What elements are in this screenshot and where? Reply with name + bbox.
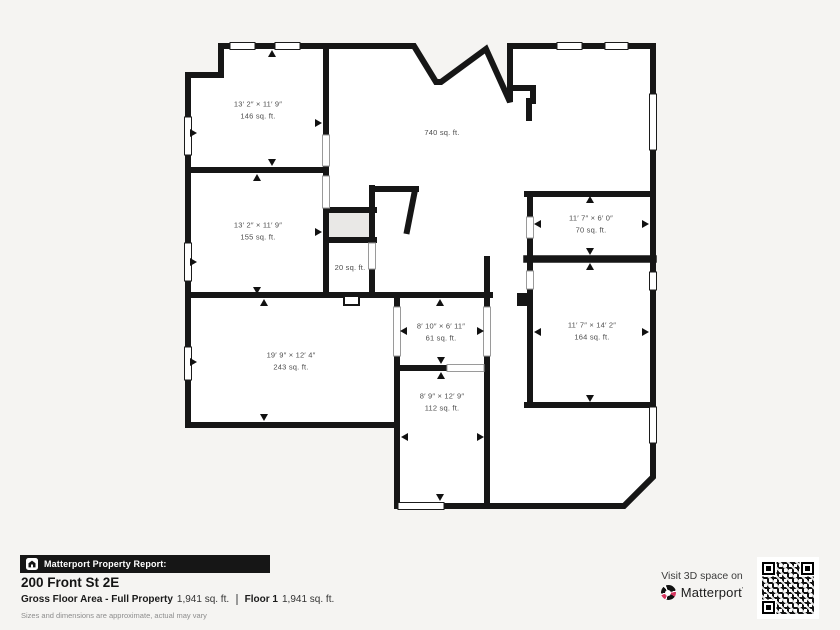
- room-dims: 13′ 2″ × 11′ 9″: [234, 98, 282, 110]
- qr-code: [757, 557, 819, 619]
- wall-stubs: [517, 293, 529, 306]
- property-icon: [26, 558, 38, 570]
- room-area: 70 sq. ft.: [569, 224, 613, 236]
- room-label-70: 11′ 7″ × 6′ 0″ 70 sq. ft.: [569, 212, 613, 235]
- brand-row: Matterport′: [650, 585, 754, 600]
- matterport-logo-icon: [661, 585, 676, 600]
- room-label-740: 740 sq. ft.: [424, 127, 459, 139]
- room-label-61: 8′ 10″ × 6′ 11″ 61 sq. ft.: [417, 320, 465, 343]
- room-dims: 19′ 9″ × 12′ 4″: [267, 349, 316, 361]
- room-area: 164 sq. ft.: [568, 331, 616, 343]
- room-area: 155 sq. ft.: [234, 231, 282, 243]
- room-area: 146 sq. ft.: [234, 110, 282, 122]
- gross-area-value: 1,941 sq. ft.: [177, 594, 229, 605]
- room-dims: 8′ 10″ × 6′ 11″: [417, 320, 465, 332]
- visit-3d-block: Visit 3D space on Matterport′: [650, 570, 754, 600]
- door-notch: [344, 296, 359, 305]
- qr-finder-top-left: [762, 562, 775, 575]
- brand-wordmark: Matterport: [681, 585, 742, 600]
- report-title: Matterport Property Report:: [44, 559, 167, 569]
- room-label-164: 11′ 7″ × 14′ 2″ 164 sq. ft.: [568, 319, 616, 342]
- room-label-155: 13′ 2″ × 11′ 9″ 155 sq. ft.: [234, 219, 282, 242]
- property-address: 200 Front St 2E: [21, 575, 119, 590]
- floor-plan: [0, 0, 840, 630]
- floor-label: Floor 1: [245, 594, 278, 605]
- room-label-closet: 20 sq. ft.: [335, 262, 366, 274]
- room-area: 112 sq. ft.: [420, 402, 465, 414]
- brand-name: Matterport′: [681, 585, 744, 600]
- room-dims: 11′ 7″ × 14′ 2″: [568, 319, 616, 331]
- qr-finder-top-right: [801, 562, 814, 575]
- room-dims: 8′ 9″ × 12′ 9″: [420, 390, 465, 402]
- floor-value: 1,941 sq. ft.: [282, 594, 334, 605]
- room-dims: 11′ 7″ × 6′ 0″: [569, 212, 613, 224]
- room-area: 740 sq. ft.: [424, 127, 459, 139]
- divider: [236, 594, 238, 605]
- visit-3d-text: Visit 3D space on: [650, 570, 754, 582]
- gross-area-label: Gross Floor Area - Full Property: [21, 594, 173, 605]
- room-label-146: 13′ 2″ × 11′ 9″ 146 sq. ft.: [234, 98, 282, 121]
- report-title-bar: Matterport Property Report:: [20, 555, 270, 573]
- area-summary: Gross Floor Area - Full Property 1,941 s…: [21, 594, 334, 605]
- property-report-page: 13′ 2″ × 11′ 9″ 146 sq. ft. 13′ 2″ × 11′…: [0, 0, 840, 630]
- room-label-112: 8′ 9″ × 12′ 9″ 112 sq. ft.: [420, 390, 465, 413]
- disclaimer-text: Sizes and dimensions are approximate, ac…: [21, 611, 207, 620]
- room-dims: 13′ 2″ × 11′ 9″: [234, 219, 282, 231]
- room-label-243: 19′ 9″ × 12′ 4″ 243 sq. ft.: [267, 349, 316, 372]
- qr-finder-bottom-left: [762, 601, 775, 614]
- room-area: 243 sq. ft.: [267, 361, 316, 373]
- room-area: 61 sq. ft.: [417, 332, 465, 344]
- room-area: 20 sq. ft.: [335, 262, 366, 274]
- stair-shaft: [329, 213, 371, 238]
